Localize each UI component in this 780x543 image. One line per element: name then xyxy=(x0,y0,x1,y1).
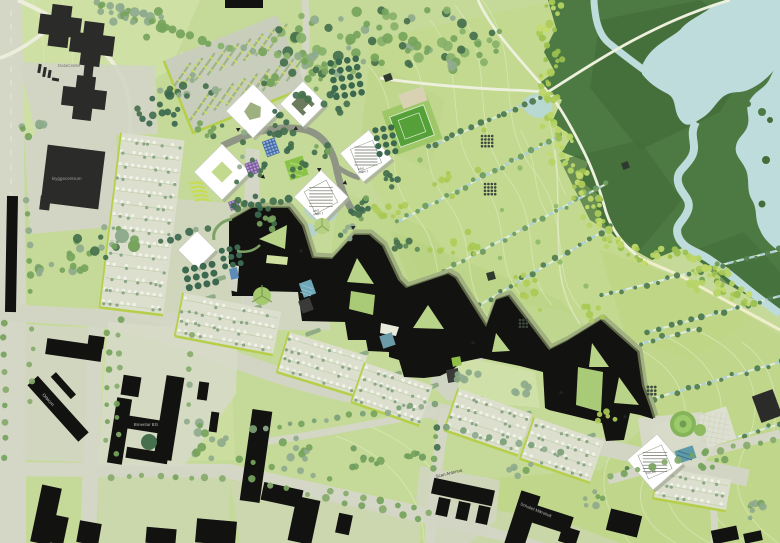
svg-text:Ementor EG: Ementor EG xyxy=(134,422,159,427)
svg-text:DataCenter: DataCenter xyxy=(58,63,81,68)
svg-text:Byggecentrum: Byggecentrum xyxy=(52,176,82,181)
